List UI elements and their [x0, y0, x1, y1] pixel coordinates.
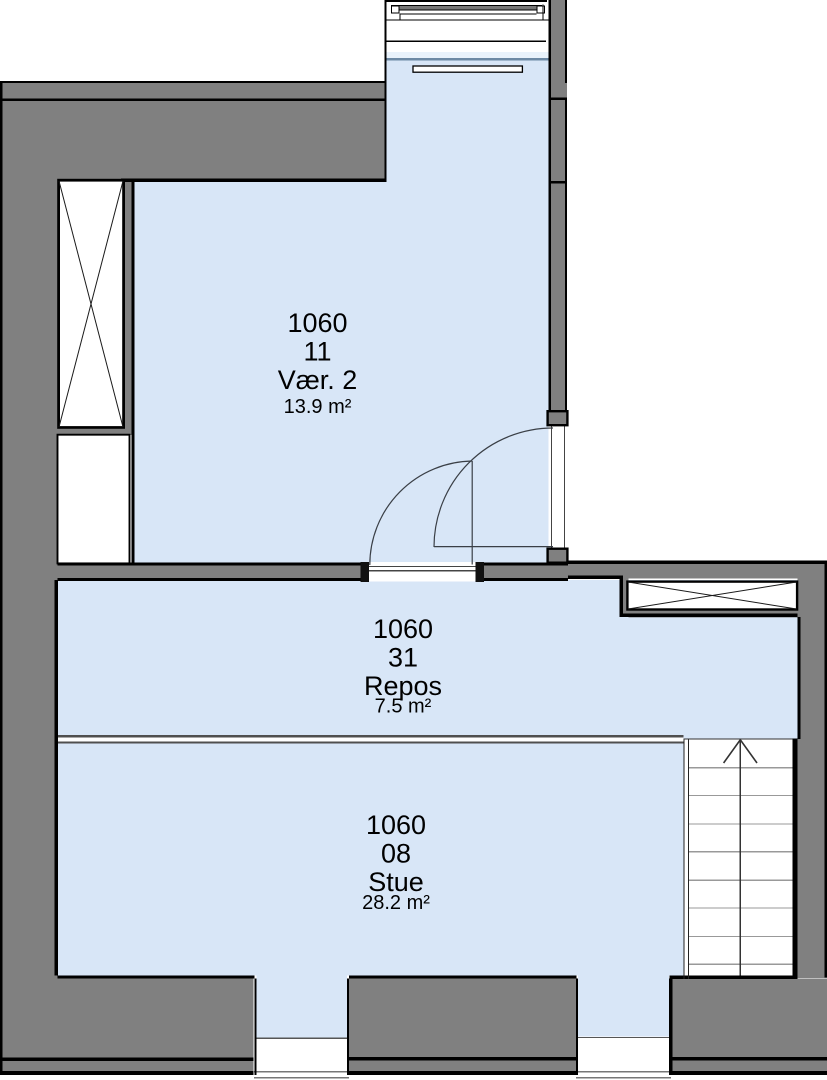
svg-text:08: 08: [381, 839, 411, 869]
svg-text:13.9 m²: 13.9 m²: [284, 396, 352, 418]
svg-text:28.2 m²: 28.2 m²: [362, 892, 430, 914]
svg-text:Vær. 2: Vær. 2: [278, 365, 358, 395]
svg-text:1060: 1060: [366, 810, 426, 840]
svg-text:1060: 1060: [287, 308, 347, 338]
svg-text:1060: 1060: [373, 614, 433, 644]
svg-text:11: 11: [303, 337, 331, 367]
svg-text:7.5 m²: 7.5 m²: [375, 696, 432, 718]
svg-text:31: 31: [388, 643, 418, 673]
